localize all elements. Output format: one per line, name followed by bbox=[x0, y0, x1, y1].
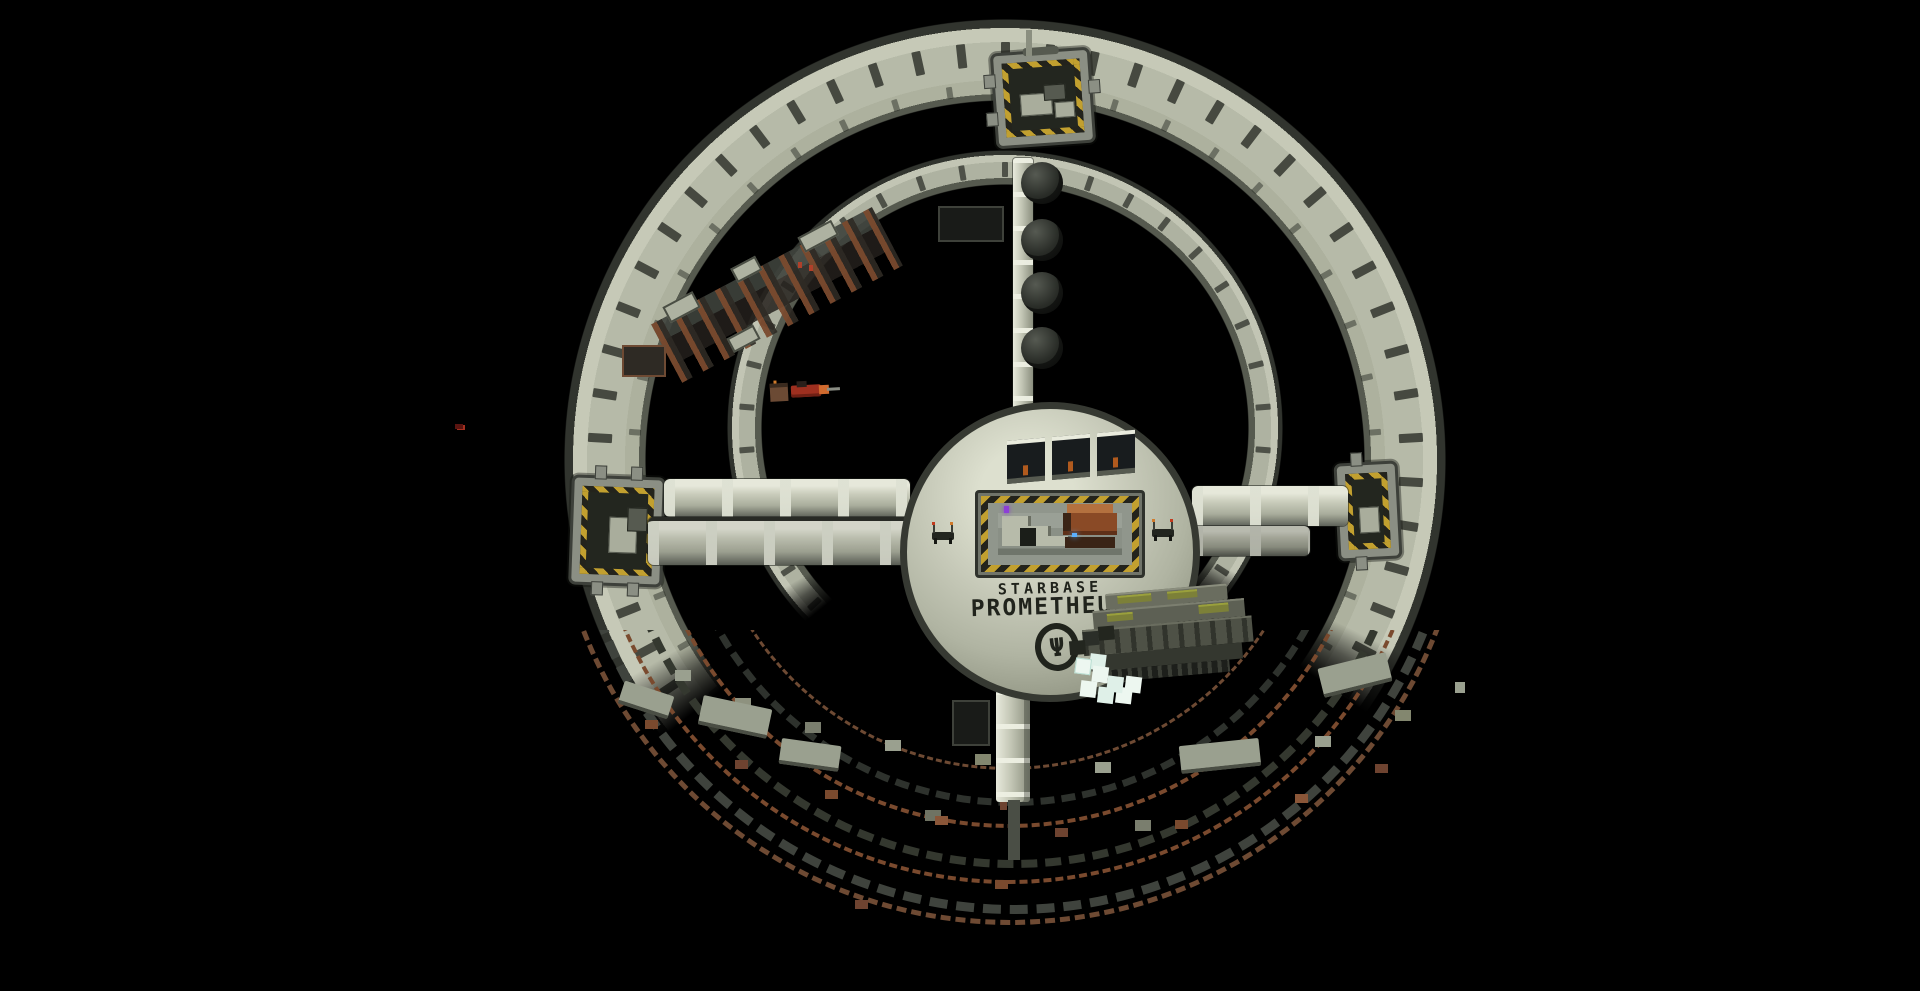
tug-craft bbox=[770, 383, 789, 402]
hazard-border bbox=[981, 496, 1139, 572]
hazard-border bbox=[1002, 58, 1085, 137]
observation-windows bbox=[1007, 429, 1143, 485]
comm-sphere bbox=[1021, 327, 1063, 369]
crystal-cluster bbox=[1074, 657, 1092, 675]
spoke-left-upper bbox=[664, 479, 910, 517]
damaged-hull-chunk bbox=[622, 345, 666, 377]
drone-antenna bbox=[1171, 521, 1173, 530]
machinery bbox=[1054, 101, 1075, 118]
docked-cargo-ship bbox=[1075, 580, 1280, 719]
antenna-light bbox=[1152, 519, 1155, 522]
antenna-light bbox=[950, 522, 953, 525]
bottom-mast-extension bbox=[1008, 800, 1020, 860]
crew-figure bbox=[1113, 457, 1118, 467]
module-tab bbox=[595, 465, 607, 479]
window bbox=[1097, 430, 1135, 476]
crew-figure bbox=[798, 262, 802, 268]
hazard-border bbox=[579, 486, 654, 576]
drone-antenna bbox=[1153, 521, 1155, 530]
module-tab bbox=[1088, 79, 1101, 94]
module-tab bbox=[1355, 556, 1368, 571]
blue-glow bbox=[1072, 533, 1077, 537]
module-tab bbox=[631, 466, 643, 480]
red-scout-ship bbox=[769, 376, 840, 406]
hauler-skirt bbox=[1065, 537, 1115, 548]
drone-leg bbox=[934, 538, 937, 544]
ring-hangar-module-top bbox=[990, 47, 1096, 150]
comm-sphere bbox=[1021, 219, 1063, 261]
emblem-glyph: Ψ bbox=[1048, 634, 1066, 660]
crew-figure bbox=[809, 265, 813, 271]
debris-light bbox=[455, 424, 463, 429]
module-tab bbox=[591, 581, 603, 595]
drone-leg bbox=[949, 538, 952, 544]
module-tab bbox=[1350, 452, 1363, 467]
scout-canopy bbox=[796, 381, 806, 388]
module-tab bbox=[627, 582, 639, 596]
hub-hangar-bay bbox=[975, 490, 1145, 578]
mast-side-panel bbox=[952, 700, 990, 746]
tug-light bbox=[773, 380, 776, 383]
drone-antenna bbox=[951, 524, 953, 533]
crew-figure bbox=[1068, 461, 1073, 471]
machinery bbox=[1043, 83, 1066, 100]
machinery bbox=[1359, 506, 1380, 533]
hauler-body bbox=[1063, 513, 1117, 535]
spoke-left-lower bbox=[648, 517, 912, 565]
window bbox=[1007, 438, 1045, 484]
drone-leg bbox=[1154, 535, 1157, 541]
comm-sphere bbox=[1021, 272, 1063, 314]
drone-leg bbox=[1169, 535, 1172, 541]
orange-cargo-hauler bbox=[1063, 504, 1117, 548]
stairs-step bbox=[1002, 536, 1071, 546]
maintenance-drone-right bbox=[1150, 521, 1176, 541]
crew-figure bbox=[1023, 465, 1028, 475]
spoke-right-lower bbox=[1192, 526, 1310, 556]
scaffold-debris bbox=[645, 720, 658, 729]
antenna-light bbox=[1170, 519, 1173, 522]
doorway bbox=[1020, 528, 1036, 546]
module-tab bbox=[986, 112, 999, 127]
hazard-border bbox=[1345, 472, 1391, 550]
maintenance-drone-left bbox=[930, 524, 956, 544]
purple-light bbox=[1004, 506, 1009, 513]
scaffold-debris bbox=[675, 670, 691, 681]
machinery bbox=[627, 507, 648, 532]
hauler-roof bbox=[1067, 504, 1113, 513]
antenna-mast-icon bbox=[1026, 30, 1032, 56]
window bbox=[1052, 434, 1090, 480]
mast-side-panel bbox=[938, 206, 1004, 242]
spoke-right-upper bbox=[1192, 486, 1348, 526]
soot-blocks bbox=[1069, 640, 1086, 655]
game-viewport[interactable]: STARBASE PROMETHEUS Ψ bbox=[0, 0, 1920, 991]
antenna-light bbox=[932, 522, 935, 525]
module-tab bbox=[983, 74, 996, 89]
scout-gun-barrel bbox=[827, 387, 840, 391]
comm-sphere bbox=[1021, 162, 1063, 204]
hangar-interior bbox=[998, 513, 1122, 555]
bottom-mast bbox=[996, 690, 1030, 802]
stairs-step bbox=[1002, 516, 1031, 526]
drone-antenna bbox=[933, 524, 935, 533]
